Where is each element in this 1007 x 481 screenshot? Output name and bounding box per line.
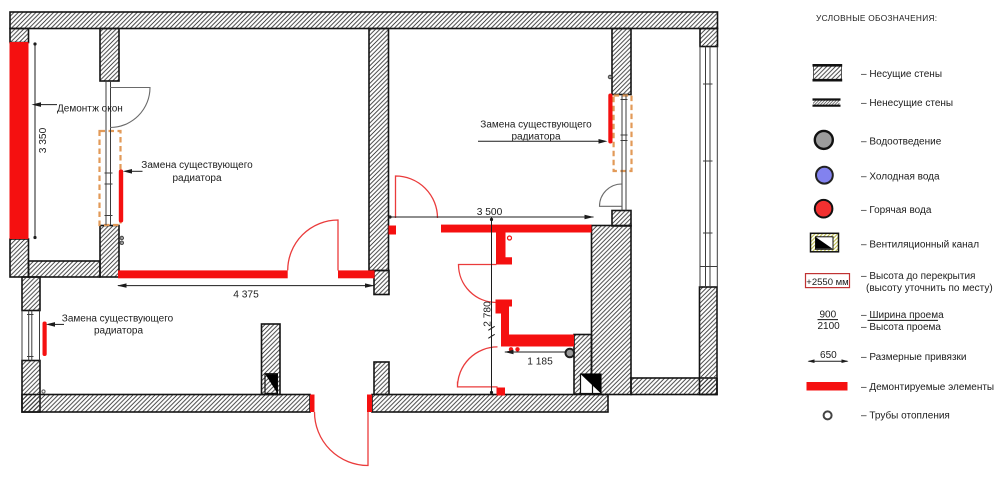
svg-text:– Демонтируемые элементы: – Демонтируемые элементы [861,382,994,393]
svg-text:Замена существующего: Замена существующего [480,119,592,130]
svg-text:– Холодная вода: – Холодная вода [861,171,940,182]
svg-text:+2550 мм: +2550 мм [806,277,848,288]
svg-text:2100: 2100 [817,321,840,332]
svg-text:УСЛОВНЫЕ ОБОЗНАЧЕНИЯ:: УСЛОВНЫЕ ОБОЗНАЧЕНИЯ: [816,13,937,23]
svg-text:3 500: 3 500 [477,207,503,218]
svg-text:– Высота проема: – Высота проема [861,322,941,333]
svg-text:– Размерные привязки: – Размерные привязки [861,352,966,363]
svg-text:3 350: 3 350 [38,127,49,153]
svg-text:1 185: 1 185 [527,356,553,367]
svg-text:650: 650 [820,350,837,361]
svg-text:– Несущие стены: – Несущие стены [861,69,942,80]
svg-text:радиатора: радиатора [511,131,560,142]
svg-text:– Вентиляционный канал: – Вентиляционный канал [861,239,979,250]
svg-text:радиатора: радиатора [94,325,143,336]
svg-text:– Водоотведение: – Водоотведение [861,137,942,148]
svg-text:– Трубы отопления: – Трубы отопления [861,410,950,422]
svg-text:2 780: 2 780 [482,301,493,327]
svg-text:радиатора: радиатора [172,173,221,184]
svg-text:– Высота до перекрытия: – Высота до перекрытия [861,271,975,282]
svg-text:(высоту уточнить по месту): (высоту уточнить по месту) [866,283,993,294]
svg-text:– Горячая вода: – Горячая вода [861,205,932,216]
svg-text:– Ширина проема: – Ширина проема [861,310,944,321]
svg-text:4 375: 4 375 [233,290,259,301]
svg-text:900: 900 [819,309,836,320]
svg-text:Демонтж окон: Демонтж окон [57,103,123,114]
svg-text:Замена существующего: Замена существующего [141,160,253,171]
svg-text:Замена существующего: Замена существующего [62,313,174,324]
svg-text:– Ненесущие стены: – Ненесущие стены [861,98,953,109]
